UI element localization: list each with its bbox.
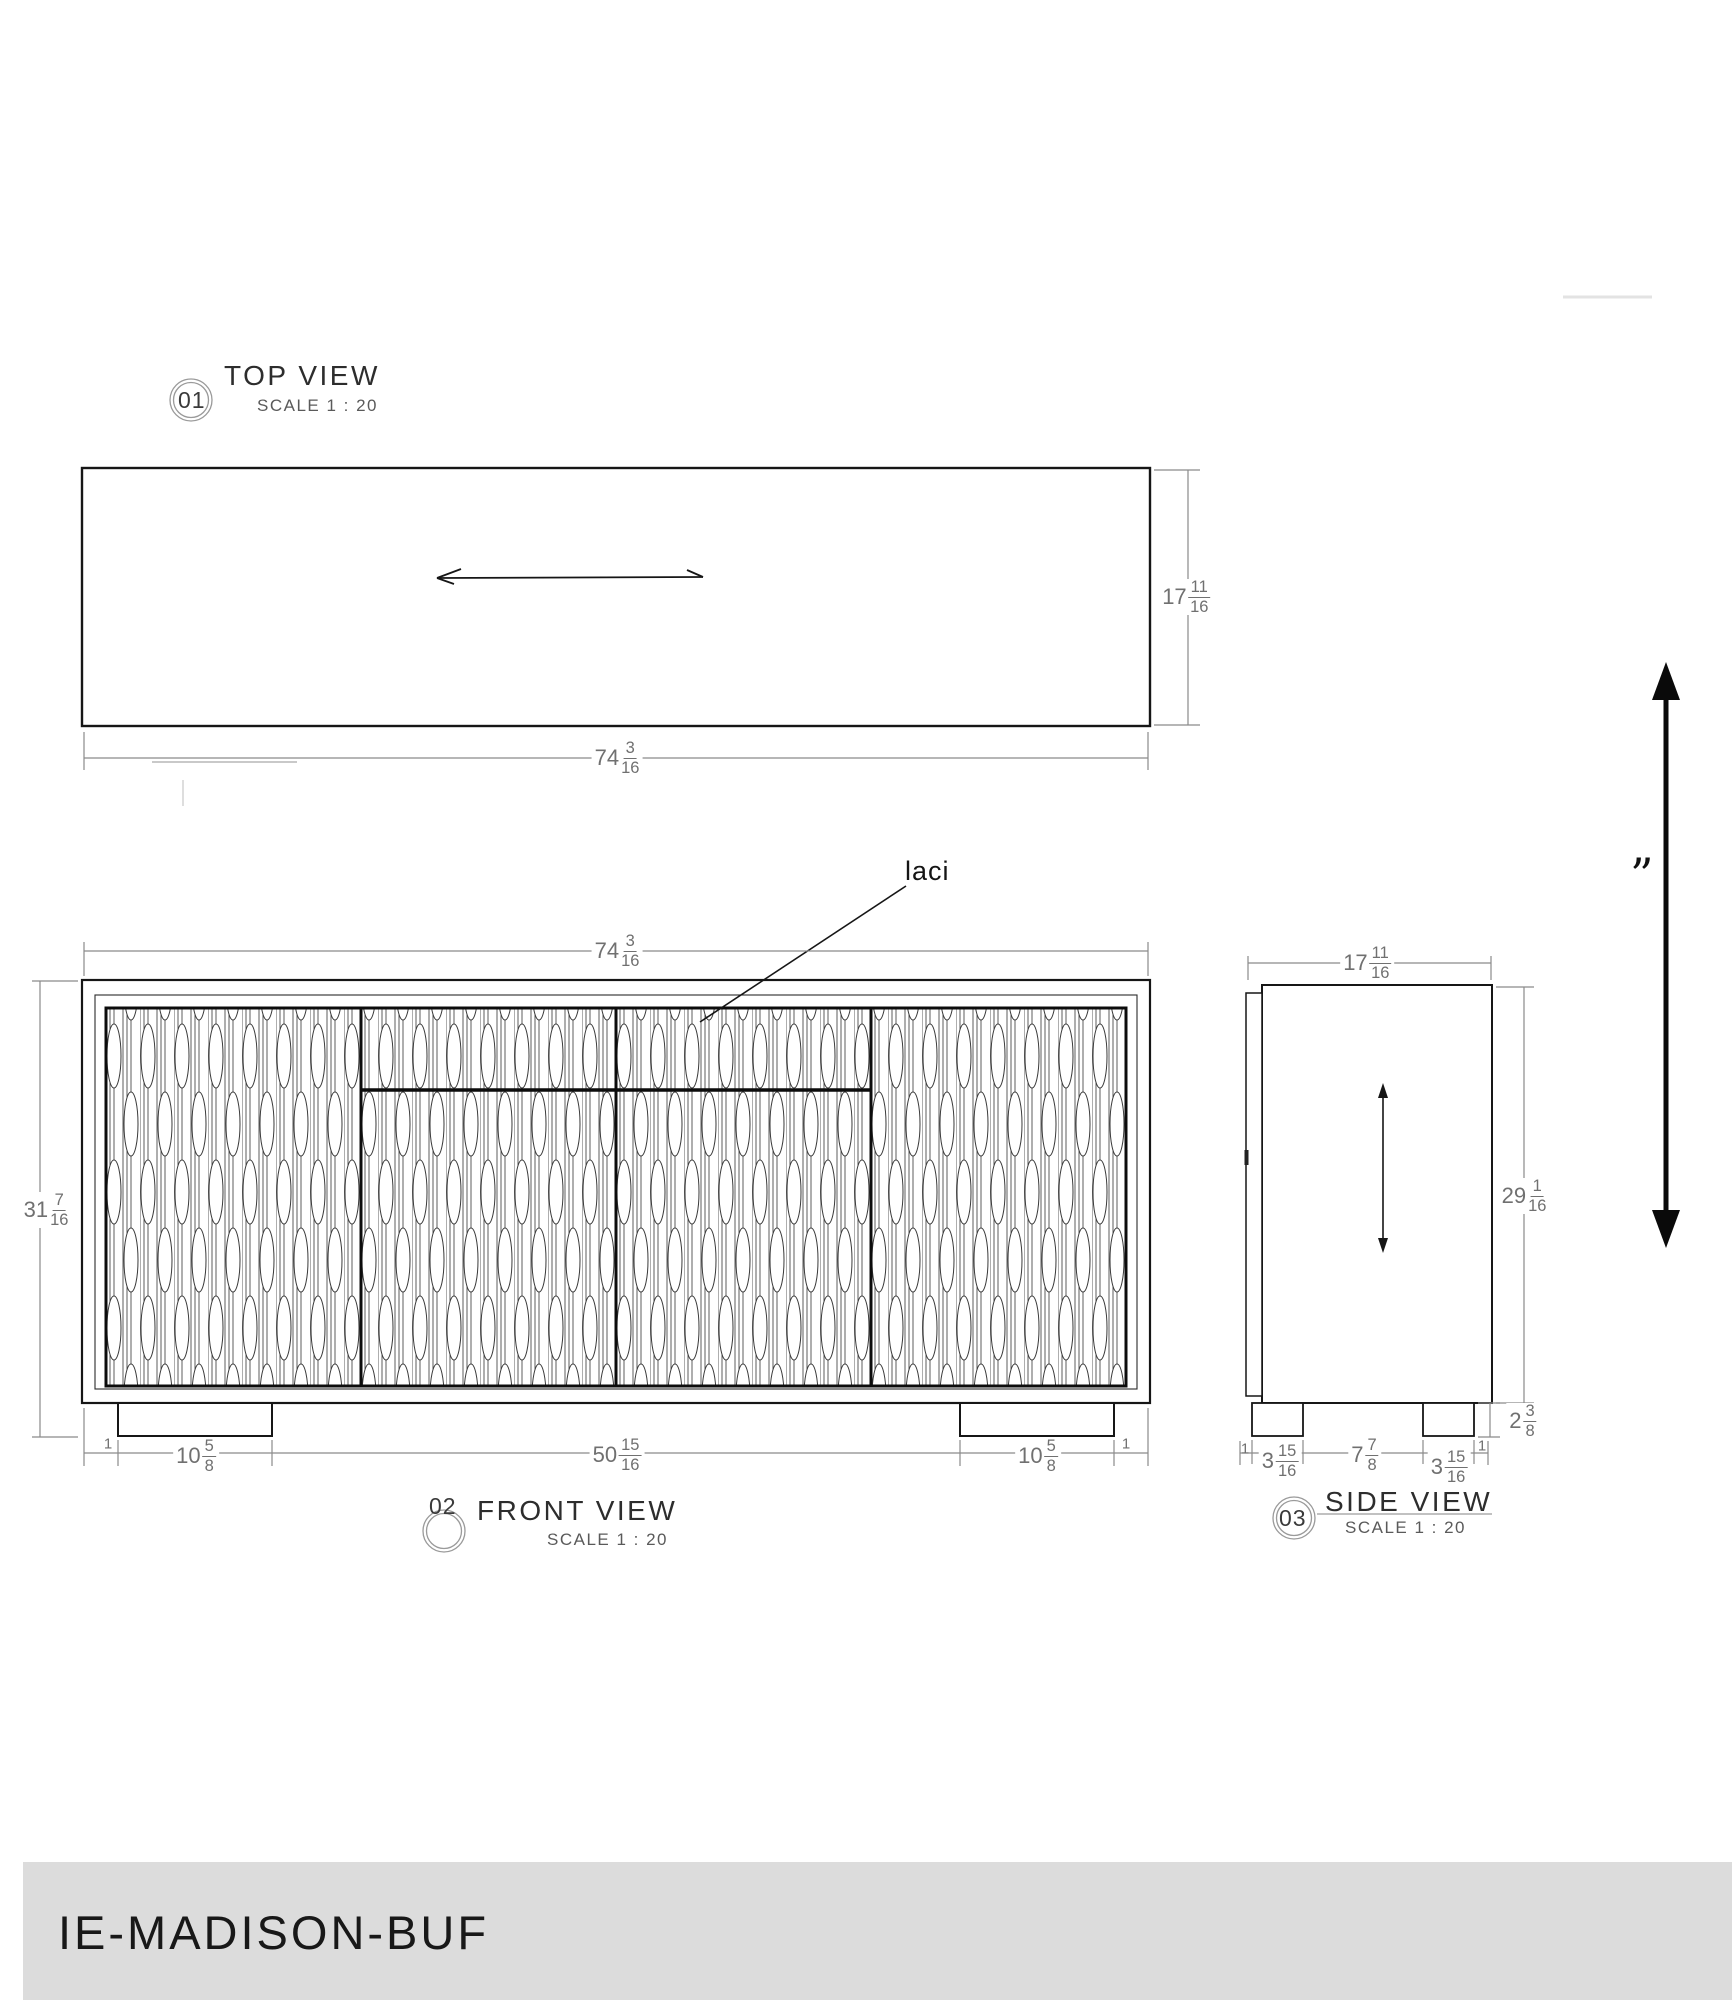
drawer-annotation: laci xyxy=(905,856,950,887)
top-view-drawing xyxy=(82,468,1200,770)
side-front-panel-strip xyxy=(1246,993,1262,1396)
drawing-linework xyxy=(0,0,1732,2000)
dim-top-depth: 17 1116 xyxy=(1159,579,1213,615)
dim-front-foot-right: 10 58 xyxy=(1015,1438,1061,1474)
view-number-top: 01 xyxy=(178,387,206,414)
dim-side-foot-height: 2 38 xyxy=(1506,1403,1539,1439)
dim-front-span: 50 1516 xyxy=(590,1437,645,1473)
product-code: IE-MADISON-BUF xyxy=(58,1905,489,1960)
view-title-top: TOP VIEW xyxy=(224,360,380,392)
dim-side-inset-left: 1 xyxy=(1241,1442,1249,1457)
dim-front-inset-right: 1 xyxy=(1122,1437,1130,1452)
dim-front-width: 74 316 xyxy=(592,933,643,969)
quote-mark: ” xyxy=(1630,852,1654,898)
view-title-front: FRONT VIEW xyxy=(477,1495,677,1527)
dim-side-depth: 17 1116 xyxy=(1340,945,1394,981)
dim-side-span: 7 78 xyxy=(1348,1437,1381,1473)
side-handle-mark xyxy=(1245,1150,1249,1165)
dim-front-height: 31 716 xyxy=(21,1192,72,1228)
side-feet xyxy=(1252,1403,1474,1436)
view-number-front: 02 xyxy=(429,1493,457,1520)
dim-front-inset-left: 1 xyxy=(104,1437,112,1452)
side-view-outline xyxy=(1262,985,1492,1403)
front-view-drawing xyxy=(32,886,1150,1466)
view-scale-top: SCALE 1 : 20 xyxy=(257,396,378,416)
top-view-outline xyxy=(82,468,1150,726)
height-arrow xyxy=(1652,662,1680,1248)
front-feet xyxy=(118,1403,1114,1436)
dim-front-foot-left: 10 58 xyxy=(173,1438,219,1474)
dim-side-foot-right: 3 1516 xyxy=(1428,1449,1471,1485)
view-number-side: 03 xyxy=(1279,1505,1307,1532)
view-scale-front: SCALE 1 : 20 xyxy=(547,1530,668,1550)
dim-side-inset-right: 1 xyxy=(1478,1439,1486,1454)
dim-side-height: 29 116 xyxy=(1499,1178,1550,1214)
view-scale-side: SCALE 1 : 20 xyxy=(1345,1518,1466,1538)
side-view-drawing xyxy=(1240,956,1534,1465)
drawing-sheet: 01 TOP VIEW SCALE 1 : 20 02 FRONT VIEW S… xyxy=(0,0,1732,2000)
view-title-side: SIDE VIEW xyxy=(1325,1486,1492,1518)
dim-top-width: 74 316 xyxy=(592,740,643,776)
dim-side-foot-left: 3 1516 xyxy=(1259,1443,1302,1479)
